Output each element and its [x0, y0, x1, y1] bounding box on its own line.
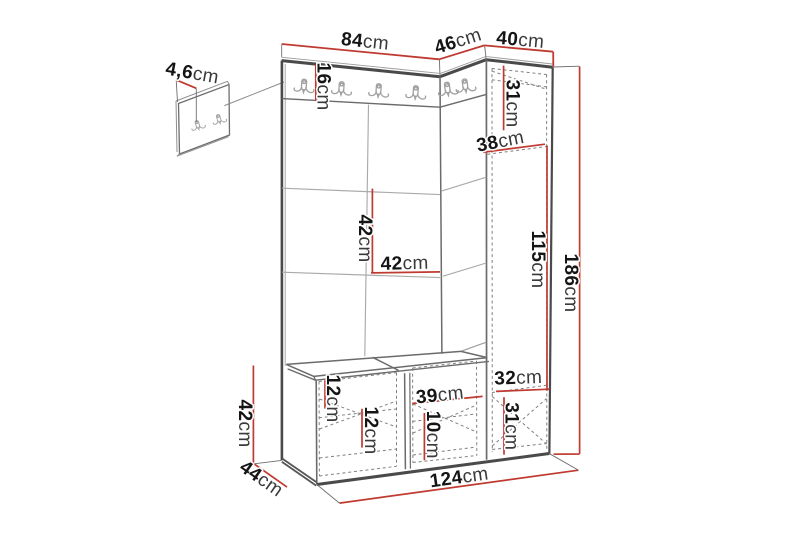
- svg-text:16cm: 16cm: [313, 63, 334, 111]
- svg-text:10cm: 10cm: [422, 411, 443, 459]
- svg-text:32cm: 32cm: [494, 367, 543, 390]
- svg-text:12cm: 12cm: [360, 407, 381, 455]
- svg-text:115cm: 115cm: [527, 231, 548, 289]
- svg-text:40cm: 40cm: [495, 28, 545, 53]
- svg-text:42cm: 42cm: [354, 215, 375, 263]
- svg-text:42cm: 42cm: [234, 400, 255, 448]
- svg-text:31cm: 31cm: [502, 80, 523, 128]
- svg-text:42cm: 42cm: [380, 253, 429, 275]
- svg-text:12cm: 12cm: [322, 375, 343, 423]
- svg-text:186cm: 186cm: [560, 254, 581, 313]
- svg-text:31cm: 31cm: [501, 402, 522, 450]
